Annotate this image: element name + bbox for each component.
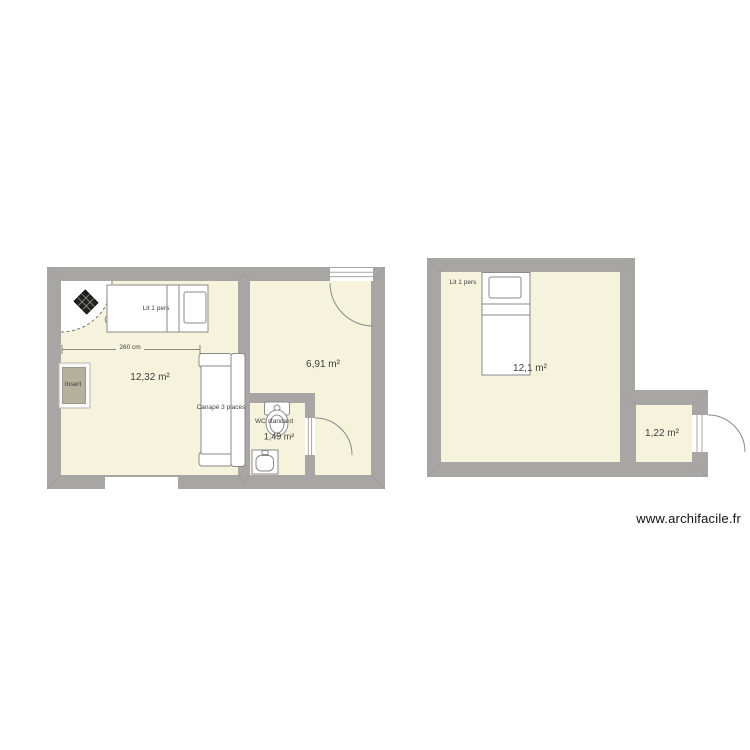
door-annex-swing-arc	[708, 415, 745, 452]
basin-icon	[252, 450, 278, 474]
room-area-wc: 1,49 m²	[264, 433, 295, 442]
dimension-label: 260 cm	[119, 345, 140, 352]
insert-label: Insert	[65, 382, 81, 389]
right-plan	[427, 258, 745, 477]
plan-drawing	[0, 0, 750, 750]
room-area-bedroom-right: 12,1 m²	[513, 364, 547, 374]
door-annex	[692, 415, 745, 452]
left-plan	[47, 267, 385, 489]
room-area-bedroom-left: 6,91 m²	[306, 360, 340, 370]
window-bottom	[105, 477, 178, 489]
floor-plan-canvas: Lit 1 pers 260 cm 12,32 m² Insert Canapé…	[0, 0, 750, 750]
bed-label-left: Lit 1 pers	[143, 306, 170, 313]
toilet-label: WC standard	[255, 419, 293, 426]
room-area-annex: 1,22 m²	[645, 429, 679, 439]
bed-icon-right	[482, 273, 530, 376]
watermark: www.archifacile.fr	[636, 511, 741, 526]
room-area-living: 12,32 m²	[130, 373, 169, 383]
bed-label-right: Lit 1 pers	[450, 280, 477, 287]
sofa-label: Canapé 3 places	[197, 405, 246, 412]
